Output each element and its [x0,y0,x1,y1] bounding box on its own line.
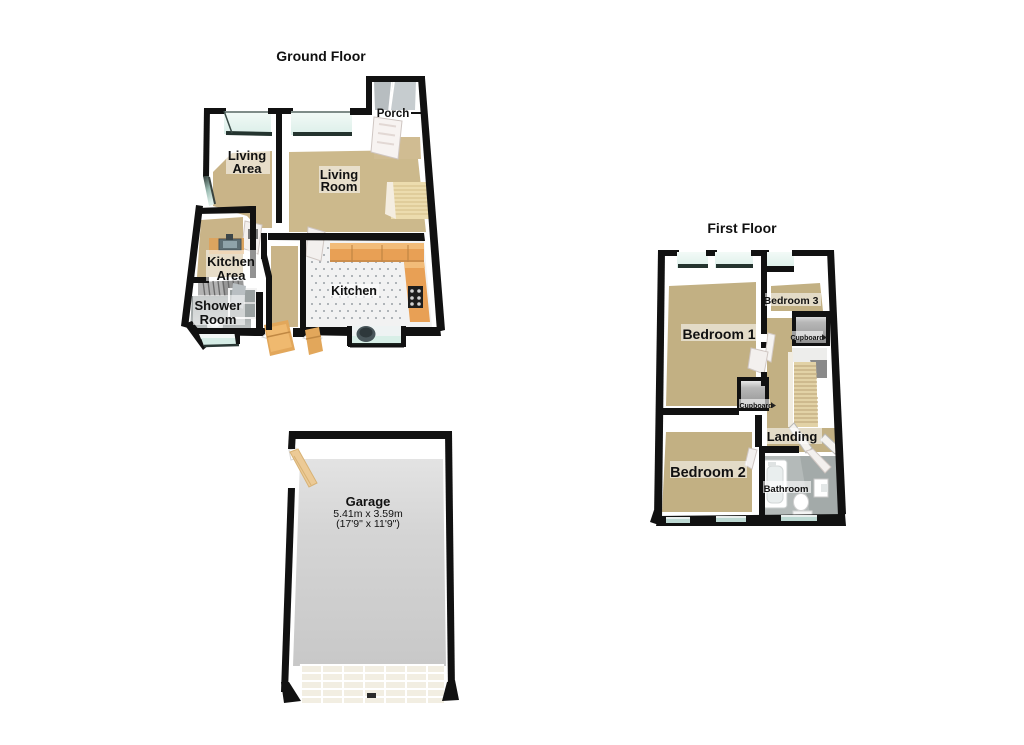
svg-text:First Floor: First Floor [707,220,777,236]
svg-text:Room: Room [200,312,237,327]
svg-text:Kitchen: Kitchen [207,254,255,269]
svg-text:Ground Floor: Ground Floor [276,48,366,64]
svg-text:Kitchen: Kitchen [331,284,377,298]
svg-text:Bedroom 1: Bedroom 1 [682,326,755,342]
svg-text:Bedroom 3: Bedroom 3 [764,295,819,307]
svg-text:Landing: Landing [767,429,818,444]
svg-text:Bathroom: Bathroom [764,484,809,495]
svg-text:Cupboard: Cupboard [790,335,823,342]
svg-text:Area: Area [233,161,263,176]
svg-text:Porch: Porch [377,108,410,120]
svg-text:Cupboard: Cupboard [739,403,772,410]
svg-text:Shower: Shower [195,298,242,313]
svg-text:(17'9" x 11'9"): (17'9" x 11'9") [336,518,400,530]
svg-text:Bedroom 2: Bedroom 2 [670,465,746,481]
svg-text:Garage: Garage [346,494,391,509]
svg-text:Area: Area [217,268,247,283]
svg-text:Room: Room [321,179,358,194]
